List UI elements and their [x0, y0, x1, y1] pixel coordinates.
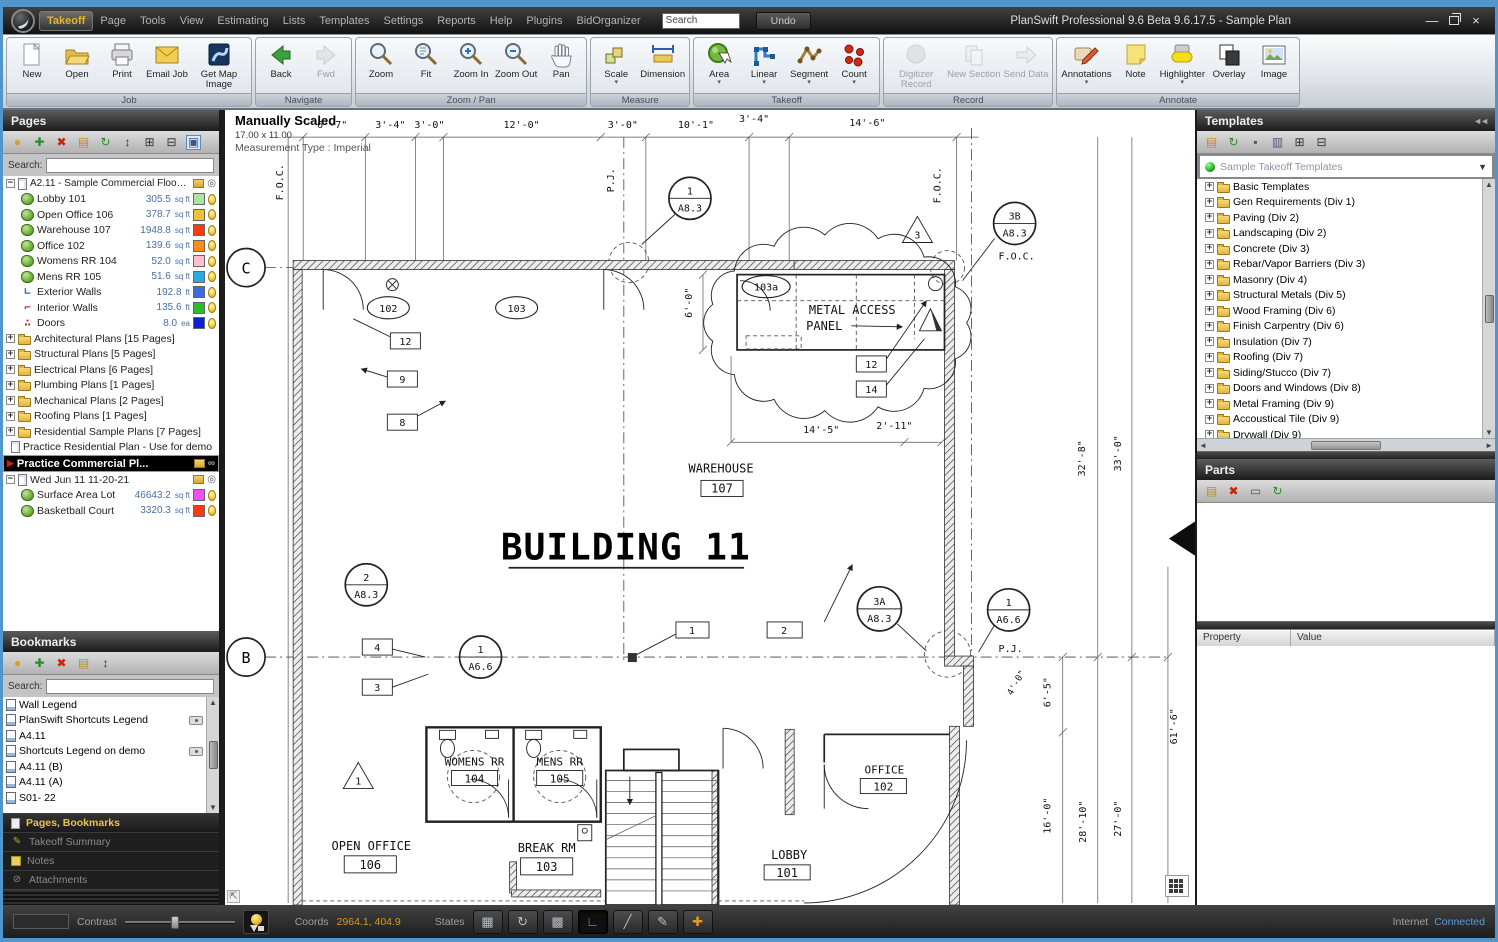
tree-expander[interactable]: + [1205, 275, 1214, 284]
keyed-note-symbol [386, 279, 398, 291]
status-input[interactable] [13, 914, 69, 929]
room-name: OFFICE [864, 763, 904, 776]
menu-view[interactable]: View [173, 12, 211, 30]
tree-row[interactable]: ∟Exterior Walls192.8ft [3, 285, 219, 301]
templates-dropdown[interactable]: Sample Takeoff Templates ▼ [1199, 155, 1493, 178]
area-takeoff-icon [21, 489, 34, 501]
menu-page[interactable]: Page [93, 12, 133, 30]
tree-row[interactable]: +Plumbing Plans [1 Pages] [3, 378, 219, 394]
button-label: Email Job [146, 70, 188, 80]
plan-canvas[interactable]: .wall{fill:url(#hz);stroke:#333;stroke-w… [225, 110, 1195, 905]
takeoff-unit: sq ft [175, 506, 190, 515]
rotate-icon[interactable]: ↻ [508, 910, 538, 934]
scroll-down-icon[interactable]: ▼ [1485, 428, 1493, 437]
folder-label: Mechanical Plans [2 Pages] [34, 395, 164, 407]
detail-bubble: 1A8.3 [642, 177, 711, 244]
menu-estimating[interactable]: Estimating [210, 12, 275, 30]
template-folder-row[interactable]: +Accoustical Tile (Div 9) [1197, 412, 1495, 428]
tree-expander[interactable]: + [1205, 322, 1214, 331]
highlighter-button[interactable]: Highlighter▾ [1159, 39, 1206, 86]
grid-bubble-c: C [242, 260, 251, 278]
scale-button[interactable]: Scale▾ [594, 39, 638, 86]
dimension-button[interactable]: Dimension [639, 39, 686, 81]
area-takeoff-icon [21, 209, 34, 221]
tree-row[interactable]: Womens RR 10452.0sq ft [3, 254, 219, 270]
menu-reports[interactable]: Reports [430, 12, 483, 30]
bookmark-item[interactable]: Wall Legend [3, 697, 219, 713]
tree-expander[interactable]: + [1205, 198, 1214, 207]
template-folder-label: Structural Metals (Div 5) [1233, 289, 1346, 301]
bookmark-page-icon [6, 714, 16, 726]
template-folder-row[interactable]: +Drywall (Div 9) [1197, 427, 1495, 438]
parts-list[interactable] [1197, 503, 1495, 621]
bookmarks-search-input[interactable] [46, 679, 214, 694]
panel-grip[interactable] [3, 889, 219, 905]
active-template-icon [1205, 162, 1215, 172]
tree-row[interactable]: +Electrical Plans [6 Pages] [3, 362, 219, 378]
undo-button[interactable]: Undo [756, 12, 811, 30]
button-label: Open [65, 70, 88, 80]
tree-expander[interactable]: + [1205, 415, 1214, 424]
dropdown-caret-icon[interactable]: ▾ [1181, 80, 1185, 85]
tab-takeoff-summary[interactable]: ✎Takeoff Summary [3, 832, 219, 851]
dimension-tool-icon[interactable]: ╱ [613, 910, 643, 934]
dim-label: 27'-0" [1113, 801, 1124, 837]
template-folder-row[interactable]: +Gen Requirements (Div 1) [1197, 195, 1495, 211]
ribbon-group-label: Navigate [256, 93, 351, 106]
refresh-icon[interactable]: ↻ [1270, 484, 1285, 499]
template-folder-label: Rebar/Vapor Barriers (Div 3) [1233, 258, 1365, 270]
scroll-right-icon[interactable]: ► [1485, 441, 1493, 450]
takeoff-value: 135.6 [157, 302, 182, 313]
button-label: Zoom In [454, 70, 489, 80]
button-label: New [22, 70, 41, 80]
linear-button[interactable]: Linear▾ [742, 39, 786, 86]
dim-label: 32'-8" [1077, 440, 1088, 476]
tab-pages-bookmarks[interactable]: Pages, Bookmarks [3, 813, 219, 832]
template-folder-row[interactable]: +Insulation (Div 7) [1197, 334, 1495, 350]
parts-toolbar: ▤✖▭↻ [1197, 480, 1495, 503]
linear-takeoff-icon: ⌐ [21, 302, 34, 314]
crosshair-icon[interactable]: ✚ [683, 910, 713, 934]
tree-expander[interactable]: + [6, 365, 15, 374]
color-swatch [193, 505, 205, 517]
takeoff-item-label: Exterior Walls [37, 286, 101, 298]
templates-toolbar: ▤↻▪▥⊞⊟ [1197, 131, 1495, 154]
dropdown-caret-icon[interactable]: ▾ [807, 80, 811, 85]
property-grid[interactable] [1197, 646, 1495, 905]
dim-label: 3'-0" [414, 120, 444, 131]
visibility-lamp-icon [208, 225, 216, 236]
button-label: Digitizer Record [888, 70, 944, 90]
print-icon [107, 40, 137, 70]
new-section-button: New Section [946, 39, 1001, 81]
tree-expander[interactable]: + [1205, 430, 1214, 438]
expand-all-icon[interactable]: ⊞ [1292, 135, 1307, 150]
zoom-in-icon [456, 40, 486, 70]
coords-value: 2964.1, 404.9 [337, 916, 401, 928]
template-folder-label: Concrete (Div 3) [1233, 243, 1309, 255]
page-item-label: A2.11 - Sample Commercial Floor Pl... [30, 178, 187, 189]
app-window: TakeoffPageToolsViewEstimatingListsTempl… [3, 7, 1495, 938]
chevron-down-icon: ▼ [1478, 162, 1487, 172]
takeoff-unit: sq ft [175, 491, 190, 500]
properties-icon[interactable]: ▤ [1204, 484, 1219, 499]
visibility-lamp-icon [208, 490, 216, 501]
tree-expander[interactable]: − [6, 475, 15, 484]
tree-expander[interactable]: + [1205, 337, 1214, 346]
pages-search-input[interactable] [46, 158, 214, 173]
bookmark-item[interactable]: A4.11 (B) [3, 759, 219, 775]
collapse-panel-icon[interactable]: ◄◄ [1473, 116, 1487, 126]
zoom-button[interactable]: Zoom [359, 39, 403, 81]
tree-row[interactable]: Lobby 101305.5sq ft [3, 192, 219, 208]
dropdown-caret-icon[interactable]: ▾ [852, 80, 856, 85]
svg-text:A6.6: A6.6 [997, 615, 1021, 626]
tree-row[interactable]: ⌐Interior Walls135.6ft [3, 300, 219, 316]
property-grid-header: Property Value [1197, 629, 1495, 646]
tree-row[interactable]: −A2.11 - Sample Commercial Floor Pl...◎ [3, 176, 219, 192]
menu-tools[interactable]: Tools [133, 12, 173, 30]
svg-text:A8.3: A8.3 [354, 590, 378, 601]
properties-icon[interactable]: ▤ [76, 135, 91, 150]
restore-icon[interactable] [1449, 16, 1459, 25]
revision-triangle: 1 [355, 777, 361, 788]
scale-size-text: 17.00 x 11.00 [235, 130, 292, 141]
scroll-up-icon[interactable]: ▲ [1485, 180, 1493, 189]
tree-expander[interactable]: + [1205, 291, 1214, 300]
scroll-thumb[interactable] [209, 741, 218, 769]
tab-notes[interactable]: Notes [3, 851, 219, 870]
folder-icon [1217, 339, 1230, 348]
tree-expander[interactable]: + [1205, 244, 1214, 253]
templates-panel-header: Templates ◄◄ [1197, 110, 1495, 131]
area-takeoff-icon [21, 505, 34, 517]
menu-plugins[interactable]: Plugins [519, 12, 569, 30]
dropdown-caret-icon[interactable]: ▾ [1085, 80, 1089, 85]
detail-bubble: 3AA8.3 [857, 587, 926, 651]
card-icon[interactable]: ▭ [1248, 484, 1263, 499]
pan-button[interactable]: Pan [539, 39, 583, 81]
bookmark-label: A4.11 (B) [19, 761, 63, 773]
ribbon-group-label: Zoom / Pan [356, 93, 586, 106]
get-map-image-button[interactable]: Get Map Image [190, 39, 248, 91]
folder-icon [18, 429, 31, 438]
tree-row[interactable]: +Roofing Plans [1 Pages] [3, 409, 219, 425]
pin-icon[interactable]: ● [10, 656, 25, 671]
properties-icon[interactable]: ▤ [1204, 135, 1219, 150]
ribbon-group-label: Record [884, 93, 1052, 106]
tree-expander[interactable]: + [1205, 182, 1214, 191]
tree-row[interactable]: +Residential Sample Plans [7 Pages] [3, 424, 219, 440]
metal-access-label: METAL ACCESS [809, 303, 896, 317]
scroll-thumb[interactable] [1311, 441, 1381, 450]
count-button[interactable]: Count▾ [832, 39, 876, 86]
segment-button[interactable]: Segment▾ [787, 39, 831, 86]
folder-icon [1217, 261, 1230, 270]
menu-bidorganizer[interactable]: BidOrganizer [569, 12, 647, 30]
takeoff-summary-tab-icon: ✎ [11, 836, 23, 848]
pan-icon [546, 40, 576, 70]
dropdown-caret-icon[interactable]: ▾ [762, 80, 766, 85]
takeoff-value: 378.7 [146, 209, 171, 220]
linear-takeoff-icon: ∟ [21, 286, 34, 298]
visibility-lamp-icon [208, 209, 216, 220]
grid-icon[interactable]: ▩ [543, 910, 573, 934]
sort-icon[interactable]: ↕ [98, 656, 113, 671]
area-takeoff-icon [21, 240, 34, 252]
annotations-button[interactable]: Annotations▾ [1060, 39, 1112, 86]
bookmark-item[interactable]: Shortcuts Legend on demo [3, 744, 219, 760]
tree-expander[interactable]: + [1205, 213, 1214, 222]
slider-thumb[interactable] [171, 916, 179, 929]
tree-expander[interactable]: − [6, 179, 15, 188]
snapshot-icon [189, 747, 203, 756]
bookmark-item[interactable]: PlanSwift Shortcuts Legend [3, 713, 219, 729]
delete-icon[interactable]: ✖ [54, 656, 69, 671]
tree-row[interactable]: Office 102139.6sq ft [3, 238, 219, 254]
contrast-slider[interactable] [125, 915, 235, 929]
titlebar: TakeoffPageToolsViewEstimatingListsTempl… [3, 7, 1495, 34]
template-folder-row[interactable]: +Doors and Windows (Div 8) [1197, 381, 1495, 397]
bookmark-item[interactable]: A4.11 [3, 728, 219, 744]
medal-icon[interactable] [243, 910, 269, 934]
takeoff-item-label: Open Office 106 [37, 209, 113, 221]
zoom-in-button[interactable]: Zoom In [449, 39, 493, 81]
template-folder-row[interactable]: +Basic Templates [1197, 179, 1495, 195]
template-folder-label: Insulation (Div 7) [1233, 336, 1312, 348]
copy-icon[interactable]: ▥ [1270, 135, 1285, 150]
template-folder-row[interactable]: +Roofing (Div 7) [1197, 350, 1495, 366]
tree-expander[interactable]: + [1205, 229, 1214, 238]
room-number: 101 [776, 866, 798, 880]
minimize-icon[interactable]: — [1425, 14, 1439, 28]
template-folder-row[interactable]: +Structural Metals (Div 5) [1197, 288, 1495, 304]
tree-expander[interactable]: + [1205, 384, 1214, 393]
template-folder-row[interactable]: +Siding/Stucco (Div 7) [1197, 365, 1495, 381]
collapse-all-icon[interactable]: ⊟ [164, 135, 179, 150]
door-tag: 103a [754, 283, 778, 294]
bookmarks-toolbar: ●✚✖▤↕ [3, 652, 219, 675]
panel-splitter[interactable] [1197, 451, 1495, 459]
annotate-tool-icon[interactable]: ✎ [648, 910, 678, 934]
scroll-up-icon[interactable]: ▲ [209, 698, 217, 707]
room-number: 105 [550, 773, 570, 786]
template-folder-label: Roofing (Div 7) [1233, 351, 1303, 363]
template-folder-row[interactable]: +Landscaping (Div 2) [1197, 226, 1495, 242]
dim-label: 6'-7" [317, 120, 347, 131]
tree-expander[interactable]: + [6, 396, 15, 405]
overlay-button[interactable]: Overlay [1207, 39, 1251, 81]
menu-takeoff[interactable]: Takeoff [39, 11, 93, 31]
room-name: BREAK RM [518, 841, 576, 855]
delete-icon[interactable]: ✖ [54, 135, 69, 150]
refresh-icon[interactable]: ↻ [1226, 135, 1241, 150]
tree-expander[interactable]: + [1205, 260, 1214, 269]
scroll-thumb[interactable] [1485, 295, 1494, 323]
grid-snap-icon[interactable]: ▦ [473, 910, 503, 934]
pages-toolbar: ●✚✖▤↻↕⊞⊟▣ [3, 131, 219, 154]
email-job-button[interactable]: Email Job [145, 39, 189, 81]
note-button[interactable]: Note [1114, 39, 1158, 81]
room-number: 106 [359, 858, 381, 872]
notes-tab-icon [11, 856, 21, 866]
tree-row[interactable]: +Architectural Plans [15 Pages] [3, 331, 219, 347]
fit-button[interactable]: Fit [404, 39, 448, 81]
tree-row[interactable]: Mens RR 10551.6sq ft [3, 269, 219, 285]
digitizer-record-icon [901, 40, 931, 70]
tab-attachments[interactable]: ⊘Attachments [3, 870, 219, 889]
panel-splitter[interactable] [1197, 621, 1495, 629]
dim-label: 3'-4" [739, 114, 769, 125]
tree-expander[interactable]: + [6, 334, 15, 343]
attachments-tab-icon: ⊘ [11, 874, 23, 886]
bookmark-label: A4.11 [19, 730, 46, 742]
bookmark-page-icon [6, 792, 16, 804]
tree-row[interactable]: +Structural Plans [5 Pages] [3, 347, 219, 363]
expand-all-icon[interactable]: ⊞ [142, 135, 157, 150]
note-icon [1121, 40, 1151, 70]
button-label: Get Map Image [191, 70, 247, 90]
bookmark-page-icon [6, 745, 16, 757]
page-thumbnail-icon [194, 459, 205, 468]
keynote-tag: 14 [865, 385, 877, 396]
template-folder-row[interactable]: +Masonry (Div 4) [1197, 272, 1495, 288]
takeoff-tool-icon[interactable]: ∟ [578, 910, 608, 934]
property-column-header[interactable]: Property [1197, 630, 1291, 646]
area-takeoff-icon [21, 255, 34, 267]
panel-view-icon[interactable]: ▣ [186, 135, 201, 150]
pin-icon[interactable]: ● [10, 135, 25, 150]
tree-expander[interactable]: + [6, 350, 15, 359]
template-folder-row[interactable]: +Paving (Div 2) [1197, 210, 1495, 226]
delete-icon[interactable]: ✖ [1226, 484, 1241, 499]
page-thumbnail-icon [193, 475, 204, 484]
folder-label: Electrical Plans [6 Pages] [34, 364, 153, 376]
ribbon-toolbar: NewOpenPrintEmail JobGet Map ImageJobBac… [3, 34, 1495, 110]
tree-row[interactable]: Surface Area Lot46643.2sq ft [3, 488, 219, 504]
dropdown-caret-icon[interactable]: ▾ [717, 80, 721, 85]
template-folder-row[interactable]: +Finish Carpentry (Div 6) [1197, 319, 1495, 335]
new-document-icon [17, 40, 47, 70]
zoom-out-button[interactable]: Zoom Out [494, 39, 538, 81]
image-button[interactable]: Image [1252, 39, 1296, 81]
menu-templates[interactable]: Templates [312, 12, 376, 30]
tree-expander[interactable]: + [1205, 368, 1214, 377]
tree-expander[interactable]: + [6, 381, 15, 390]
templates-tree: +Basic Templates+Gen Requirements (Div 1… [1197, 179, 1495, 438]
folder-icon [1217, 354, 1230, 363]
print-button[interactable]: Print [100, 39, 144, 81]
bookmark-item[interactable]: A4.11 (A) [3, 775, 219, 791]
area-button[interactable]: Area▾ [697, 39, 741, 86]
refresh-icon[interactable]: ↻ [98, 135, 113, 150]
takeoff-item-label: Office 102 [37, 240, 85, 252]
new-button[interactable]: New [10, 39, 54, 81]
template-folder-row[interactable]: +Rebar/Vapor Barriers (Div 3) [1197, 257, 1495, 273]
add-icon[interactable]: ✚ [32, 135, 47, 150]
folder-icon [18, 382, 31, 391]
detail-bubble: 1A6.6 [979, 589, 1030, 652]
tree-expander[interactable]: + [1205, 399, 1214, 408]
takeoff-item-label: Womens RR 104 [37, 255, 117, 267]
svg-text:3A: 3A [873, 597, 885, 608]
tree-expander[interactable]: + [6, 412, 15, 421]
templates-scrollbar[interactable]: ▲ ▼ [1482, 179, 1495, 438]
button-label: Send Data [1003, 70, 1048, 80]
add-icon[interactable]: ✚ [32, 656, 47, 671]
tree-row[interactable]: Practice Residential Plan - Use for demo [3, 440, 219, 456]
linear-icon [749, 40, 779, 70]
tree-row[interactable]: +Mechanical Plans [2 Pages] [3, 393, 219, 409]
tree-row[interactable]: ∴Doors8.0ea [3, 316, 219, 332]
back-button[interactable]: Back [259, 39, 303, 81]
takeoff-item-label: Mens RR 105 [37, 271, 101, 283]
search-input[interactable] [662, 13, 740, 29]
pages-search-label: Search: [8, 160, 42, 171]
menu-settings[interactable]: Settings [376, 12, 430, 30]
close-icon[interactable]: × [1469, 14, 1483, 28]
tree-expander[interactable]: + [1205, 306, 1214, 315]
tree-expander[interactable]: + [1205, 353, 1214, 362]
value-column-header[interactable]: Value [1291, 630, 1495, 646]
menu-help[interactable]: Help [483, 12, 520, 30]
pan-edge-arrow[interactable] [1169, 522, 1195, 556]
new-template-icon[interactable]: ▪ [1248, 135, 1263, 150]
takeoff-unit: sq ft [175, 226, 190, 235]
sort-icon[interactable]: ↕ [120, 135, 135, 150]
bookmark-item[interactable]: S01- 22 [3, 790, 219, 806]
get-map-image-icon [204, 40, 234, 70]
visibility-lamp-icon [208, 287, 216, 298]
resize-corner-icon[interactable]: ⇱ [227, 890, 240, 903]
template-folder-row[interactable]: +Concrete (Div 3) [1197, 241, 1495, 257]
tree-row[interactable]: −Wed Jun 11 11-20-21◎ [3, 472, 219, 488]
building-title: BUILDING 11 [501, 526, 751, 569]
tree-row[interactable]: Open Office 106378.7sq ft [3, 207, 219, 223]
tree-expander[interactable]: + [6, 427, 15, 436]
menu-lists[interactable]: Lists [276, 12, 313, 30]
folder-label: Residential Sample Plans [7 Pages] [34, 426, 201, 438]
bookmarks-scrollbar[interactable]: ▲ ▼ [206, 697, 219, 813]
dropdown-caret-icon[interactable]: ▾ [614, 80, 618, 85]
collapse-all-icon[interactable]: ⊟ [1314, 135, 1329, 150]
tree-row[interactable]: Warehouse 1071948.8sq ft [3, 223, 219, 239]
scroll-down-icon[interactable]: ▼ [209, 803, 217, 812]
menubar: TakeoffPageToolsViewEstimatingListsTempl… [39, 11, 648, 31]
template-folder-row[interactable]: +Wood Framing (Div 6) [1197, 303, 1495, 319]
templates-hscrollbar[interactable]: ◄ ► [1197, 438, 1495, 451]
zoom-icon [366, 40, 396, 70]
properties-icon[interactable]: ▤ [76, 656, 91, 671]
selected-page-row[interactable]: ▶Practice Commercial Pl...∞ [3, 455, 219, 472]
keynote-tag: 3 [374, 683, 380, 694]
tree-row[interactable]: Basketball Court3320.3sq ft [3, 503, 219, 519]
area-takeoff-icon [21, 224, 34, 236]
visibility-lamp-icon [208, 194, 216, 205]
bookmark-page-icon [6, 699, 16, 711]
dim-label: 10'-1" [678, 120, 714, 131]
page-settings-icon: ◎ [207, 179, 216, 189]
folder-icon [1217, 277, 1230, 286]
template-folder-row[interactable]: +Metal Framing (Div 9) [1197, 396, 1495, 412]
visibility-lamp-icon [208, 318, 216, 329]
page-options-icon: ∞ [208, 458, 215, 469]
scroll-left-icon[interactable]: ◄ [1199, 441, 1207, 450]
open-button[interactable]: Open [55, 39, 99, 81]
grid-toggle-button[interactable] [1165, 875, 1189, 897]
button-label: Fit [421, 70, 432, 80]
